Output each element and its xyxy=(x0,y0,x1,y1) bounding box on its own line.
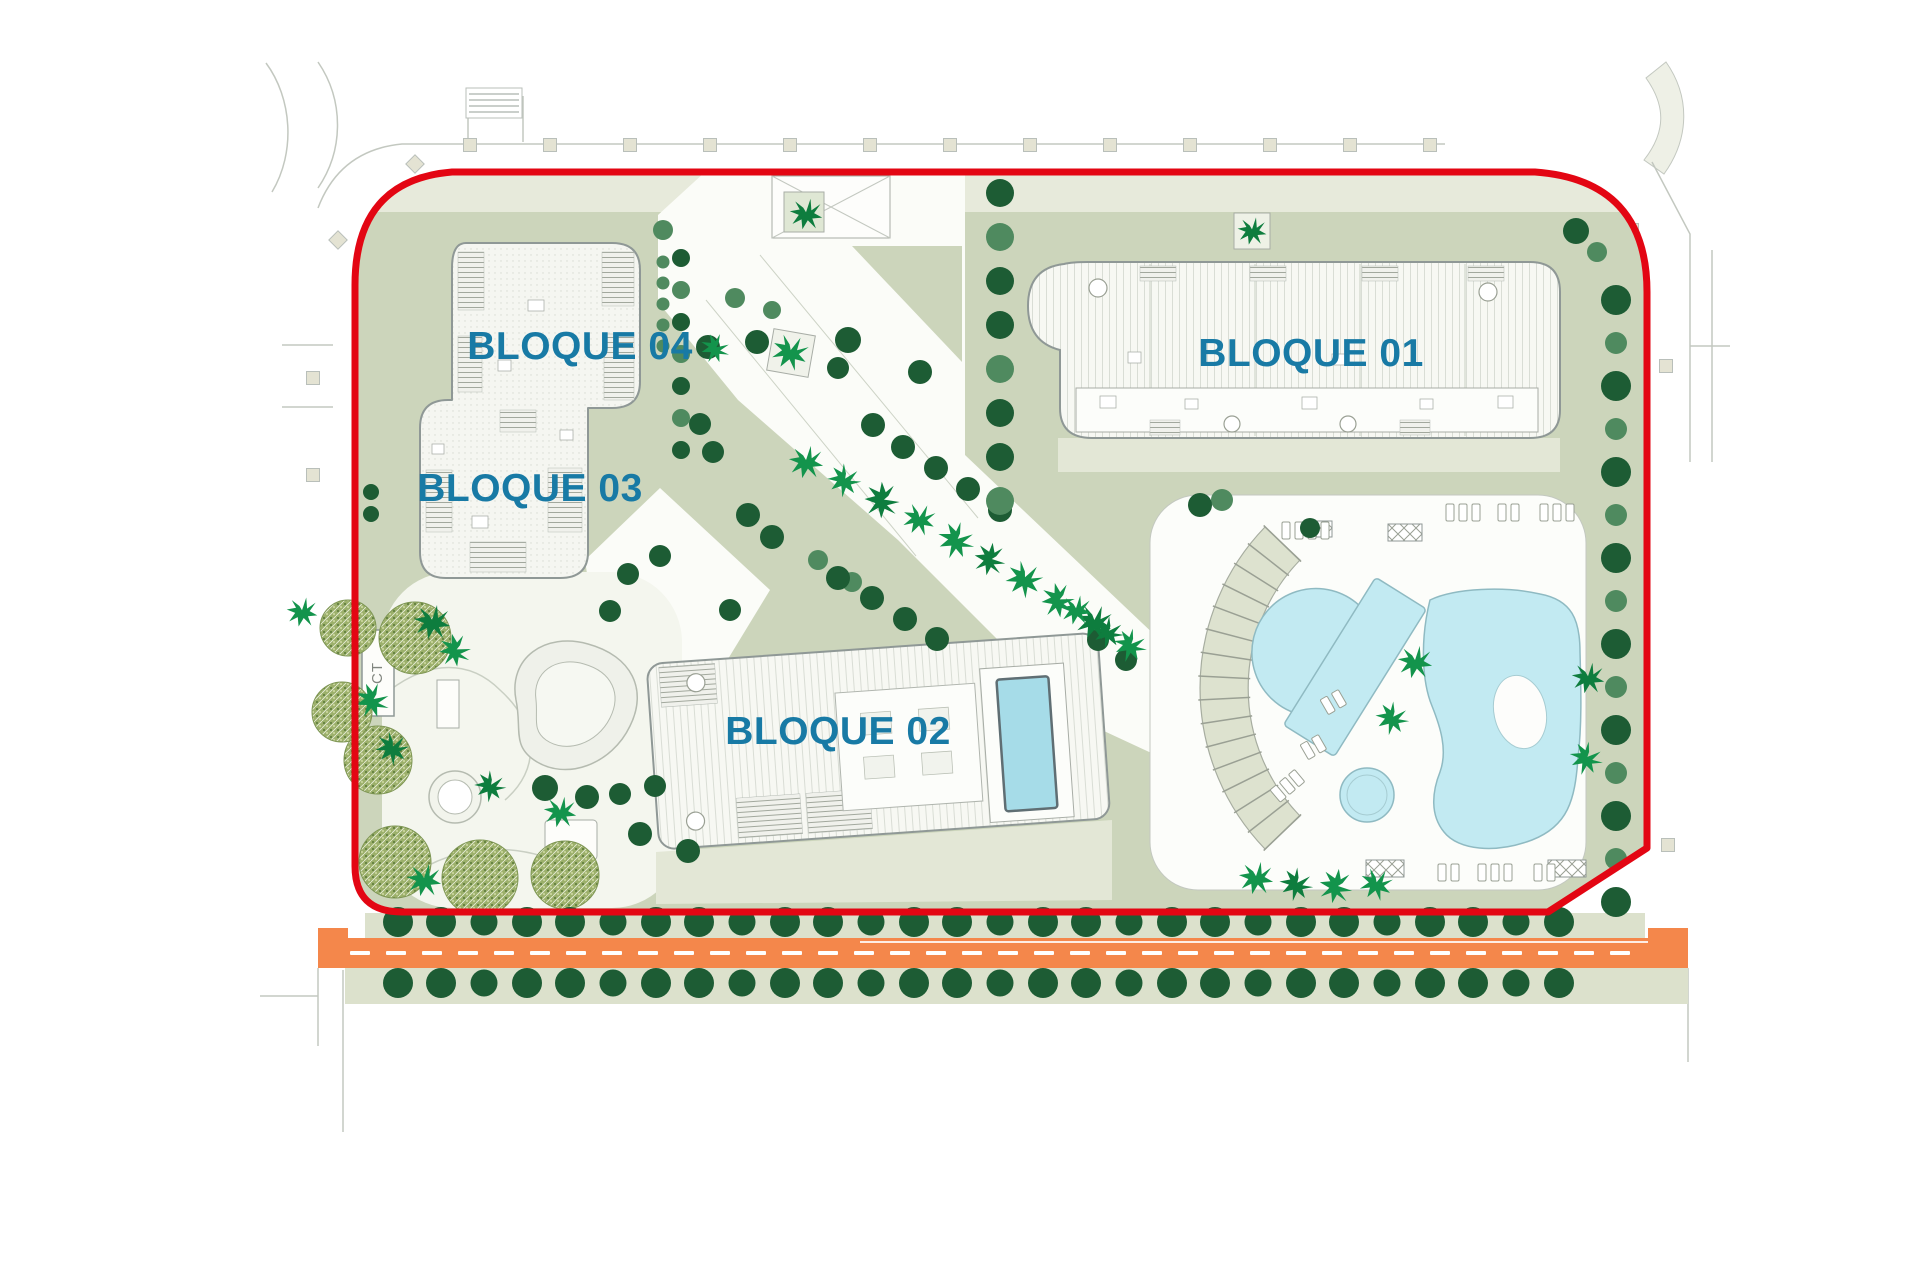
road-dash xyxy=(386,951,406,955)
road-dash xyxy=(1358,951,1378,955)
tree xyxy=(986,355,1014,383)
tree xyxy=(1188,493,1212,517)
road-dash xyxy=(1466,951,1486,955)
tree xyxy=(956,477,980,501)
tree xyxy=(891,435,915,459)
sun-lounger xyxy=(1534,864,1542,881)
road-dash xyxy=(350,951,370,955)
tree xyxy=(986,443,1014,471)
tree xyxy=(363,506,379,522)
site-plan-svg: CT xyxy=(0,0,1920,1280)
road-dash xyxy=(1322,951,1342,955)
east-sidewalk-line xyxy=(1652,162,1690,462)
tree xyxy=(676,839,700,863)
tree xyxy=(908,360,932,384)
tree xyxy=(835,327,861,353)
sun-lounger xyxy=(1553,504,1561,521)
tree xyxy=(689,413,711,435)
tree xyxy=(987,970,1014,997)
b02-rooftop-pool xyxy=(996,676,1057,811)
streetlight-square xyxy=(329,231,347,249)
tree xyxy=(924,456,948,480)
sun-lounger xyxy=(1540,504,1548,521)
tree xyxy=(1601,715,1631,745)
tree xyxy=(426,968,456,998)
tree xyxy=(986,223,1014,251)
road-dash xyxy=(458,951,478,955)
tree xyxy=(702,441,724,463)
corner-road-arc xyxy=(1644,62,1684,174)
tree xyxy=(729,970,756,997)
sun-lounger xyxy=(1451,864,1459,881)
tree xyxy=(1245,970,1272,997)
road-dash xyxy=(1070,951,1090,955)
tree xyxy=(672,441,690,459)
tree xyxy=(861,413,885,437)
streetlight-square xyxy=(464,139,477,152)
road-dash xyxy=(926,951,946,955)
road-dash xyxy=(746,951,766,955)
tree xyxy=(649,545,671,567)
tree xyxy=(383,968,413,998)
tree xyxy=(827,357,849,379)
pergola xyxy=(1388,524,1422,541)
tree xyxy=(512,968,542,998)
road-dash xyxy=(602,951,622,955)
road-end-west xyxy=(318,928,348,968)
b01-south-terrace xyxy=(1058,438,1560,472)
tree xyxy=(1458,968,1488,998)
tree xyxy=(1601,801,1631,831)
sun-lounger xyxy=(1504,864,1512,881)
road-dash xyxy=(1106,951,1126,955)
tree xyxy=(986,311,1014,339)
streetlight-square xyxy=(544,139,557,152)
tree xyxy=(672,377,690,395)
tree xyxy=(1587,242,1607,262)
road-dash xyxy=(1610,951,1630,955)
label-bloque-04: BLOQUE 04 xyxy=(467,325,693,368)
tree xyxy=(1503,970,1530,997)
tree xyxy=(1300,518,1320,538)
streetlight-square xyxy=(784,139,797,152)
sun-lounger xyxy=(1566,504,1574,521)
tree xyxy=(986,179,1014,207)
road-dash xyxy=(1142,951,1162,955)
tree xyxy=(1329,968,1359,998)
tree xyxy=(657,298,670,311)
east-sidewalk-ticks xyxy=(1690,250,1730,462)
tree xyxy=(1544,968,1574,998)
road-dash xyxy=(1430,951,1450,955)
road-dash xyxy=(710,951,730,955)
tree xyxy=(1601,887,1631,917)
road-end-east xyxy=(1648,928,1688,968)
tree xyxy=(725,288,745,308)
tree xyxy=(986,399,1014,427)
tree xyxy=(719,599,741,621)
tree xyxy=(1415,968,1445,998)
tree xyxy=(471,970,498,997)
tree xyxy=(808,550,828,570)
tree xyxy=(672,249,690,267)
label-bloque-01: BLOQUE 01 xyxy=(1198,332,1424,375)
tree xyxy=(925,627,949,651)
tree xyxy=(760,525,784,549)
olive-tree xyxy=(312,682,372,742)
tree xyxy=(893,607,917,631)
tree xyxy=(672,281,690,299)
road-edge-line xyxy=(860,941,1648,943)
streetlight-square xyxy=(1424,139,1437,152)
road-dash xyxy=(1034,951,1054,955)
tree xyxy=(745,330,769,354)
sun-lounger xyxy=(1491,864,1499,881)
tree xyxy=(860,586,884,610)
road-dash xyxy=(1214,951,1234,955)
streetlight-square xyxy=(1662,839,1675,852)
road-dash xyxy=(998,951,1018,955)
label-bloque-03: BLOQUE 03 xyxy=(417,467,643,510)
road-dash xyxy=(674,951,694,955)
streetlight-square xyxy=(307,372,320,385)
planter xyxy=(437,680,459,728)
sun-lounger xyxy=(1511,504,1519,521)
tree xyxy=(770,968,800,998)
streetlight-square xyxy=(1184,139,1197,152)
streetlight-square xyxy=(704,139,717,152)
tree xyxy=(1286,968,1316,998)
tree xyxy=(657,256,670,269)
tree xyxy=(1200,968,1230,998)
tree xyxy=(1605,676,1627,698)
tree xyxy=(1211,489,1233,511)
tree xyxy=(986,267,1014,295)
tree xyxy=(1071,968,1101,998)
tree xyxy=(684,968,714,998)
label-bloque-02: BLOQUE 02 xyxy=(725,710,951,753)
road-dash xyxy=(818,951,838,955)
road-dash xyxy=(1394,951,1414,955)
streetlight-square xyxy=(944,139,957,152)
site-plan-canvas: CT xyxy=(0,0,1920,1280)
tree xyxy=(986,487,1014,515)
road-dash xyxy=(1538,951,1558,955)
road-dash xyxy=(854,951,874,955)
spa-circle xyxy=(1340,768,1394,822)
tree xyxy=(1563,218,1589,244)
tree xyxy=(657,277,670,290)
sun-lounger xyxy=(1472,504,1480,521)
road-dash xyxy=(1574,951,1594,955)
tree xyxy=(609,783,631,805)
streetlight-square xyxy=(1104,139,1117,152)
tree xyxy=(1601,285,1631,315)
streetlight-square xyxy=(1660,360,1673,373)
b01-corridor xyxy=(1076,388,1538,432)
sun-lounger xyxy=(1459,504,1467,521)
streetlight-square xyxy=(1344,139,1357,152)
road-dash xyxy=(890,951,910,955)
road-dash xyxy=(566,951,586,955)
tree xyxy=(1028,968,1058,998)
olive-tree xyxy=(442,840,518,916)
curved-road-line xyxy=(318,62,338,188)
olive-tree xyxy=(320,600,376,656)
tree xyxy=(813,968,843,998)
tree xyxy=(575,785,599,809)
road-dash xyxy=(962,951,982,955)
road-dash xyxy=(1178,951,1198,955)
tree xyxy=(736,503,760,527)
lounger-group xyxy=(1446,504,1480,521)
palm-tree xyxy=(287,598,318,627)
streetlight-square xyxy=(406,155,424,173)
lounger-group xyxy=(1540,504,1574,521)
tree xyxy=(532,775,558,801)
tree xyxy=(363,484,379,500)
streetlight-square xyxy=(307,469,320,482)
tree xyxy=(763,301,781,319)
tree xyxy=(628,822,652,846)
tree xyxy=(826,566,850,590)
road-dash xyxy=(1286,951,1306,955)
crosswalk xyxy=(466,88,522,118)
sun-lounger xyxy=(1438,864,1446,881)
streetlight-square xyxy=(1264,139,1277,152)
tree xyxy=(942,968,972,998)
road-dash xyxy=(1502,951,1522,955)
streetlight-square xyxy=(864,139,877,152)
tree xyxy=(653,220,673,240)
ct-label: CT xyxy=(369,662,386,684)
tree xyxy=(1605,762,1627,784)
streetlight-square xyxy=(624,139,637,152)
southwest-lines xyxy=(260,968,343,1132)
road-dash xyxy=(638,951,658,955)
tree xyxy=(1601,543,1631,573)
sun-lounger xyxy=(1547,864,1555,881)
tree xyxy=(1601,629,1631,659)
tree xyxy=(858,970,885,997)
tree xyxy=(899,968,929,998)
road-dash xyxy=(782,951,802,955)
tree xyxy=(672,409,690,427)
tree xyxy=(1605,590,1627,612)
tree xyxy=(1374,970,1401,997)
olive-tree xyxy=(379,602,451,674)
tree xyxy=(617,563,639,585)
sun-lounger xyxy=(1478,864,1486,881)
tree xyxy=(599,600,621,622)
tree xyxy=(1605,418,1627,440)
road-dash xyxy=(530,951,550,955)
tree xyxy=(1601,371,1631,401)
sun-lounger xyxy=(1321,522,1329,539)
lounger-group xyxy=(1478,864,1512,881)
olive-tree xyxy=(531,841,599,909)
tree xyxy=(1605,332,1627,354)
sun-lounger xyxy=(1498,504,1506,521)
tree xyxy=(1605,504,1627,526)
tree xyxy=(555,968,585,998)
road-dash xyxy=(422,951,442,955)
curved-road-line xyxy=(266,63,288,192)
tree xyxy=(644,775,666,797)
sun-lounger xyxy=(1282,522,1290,539)
tree xyxy=(1157,968,1187,998)
sun-lounger xyxy=(1446,504,1454,521)
fountain-inner xyxy=(438,780,472,814)
road-dash xyxy=(494,951,514,955)
road-dash xyxy=(1250,951,1270,955)
tree xyxy=(600,970,627,997)
tree xyxy=(1116,970,1143,997)
streetlight-square xyxy=(1024,139,1037,152)
tree xyxy=(641,968,671,998)
tree xyxy=(1601,457,1631,487)
